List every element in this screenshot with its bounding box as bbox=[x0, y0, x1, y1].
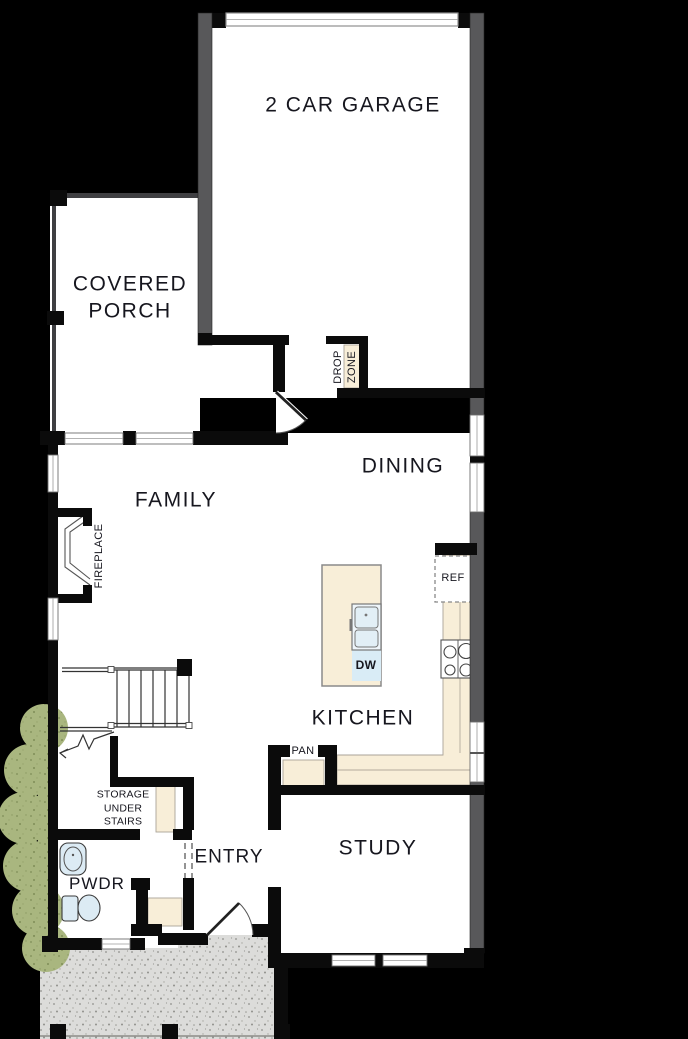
storage-shelf bbox=[156, 782, 175, 832]
drop-zone-label-1: DROP bbox=[331, 350, 345, 383]
garage-door bbox=[226, 13, 458, 26]
floor-plan: 2 CAR GARAGE COVERED PORCH FAMILY DINING… bbox=[0, 0, 688, 1039]
garage-left-wall bbox=[198, 13, 212, 345]
storage-label: STORAGE UNDER STAIRS bbox=[97, 789, 150, 830]
fireplace-label: FIREPLACE bbox=[92, 524, 106, 589]
cooktop-icon bbox=[441, 640, 474, 678]
garage-label: 2 CAR GARAGE bbox=[265, 91, 441, 118]
entry-label: ENTRY bbox=[194, 846, 263, 871]
stair-newel bbox=[177, 659, 192, 676]
pantry-shelf bbox=[283, 760, 324, 787]
dishwasher-label: DW bbox=[356, 658, 377, 674]
kitchen-label: KITCHEN bbox=[312, 704, 415, 731]
kitchen-study-wall bbox=[268, 785, 484, 795]
bathroom-sink-icon bbox=[60, 843, 86, 875]
refrigerator-label: REF bbox=[441, 571, 464, 585]
sink-icon bbox=[350, 604, 382, 650]
closet-shelf bbox=[148, 898, 182, 926]
pantry-label: PAN bbox=[291, 744, 314, 758]
right-exterior-wall bbox=[470, 13, 484, 415]
study-label: STUDY bbox=[339, 834, 418, 861]
pwdr-label: PWDR bbox=[69, 873, 125, 895]
family-label: FAMILY bbox=[135, 486, 217, 513]
drop-zone-label-2: ZONE bbox=[345, 351, 359, 383]
covered-porch-label: COVERED PORCH bbox=[73, 271, 187, 326]
toilet-icon bbox=[62, 895, 100, 921]
dining-label: DINING bbox=[362, 452, 445, 479]
